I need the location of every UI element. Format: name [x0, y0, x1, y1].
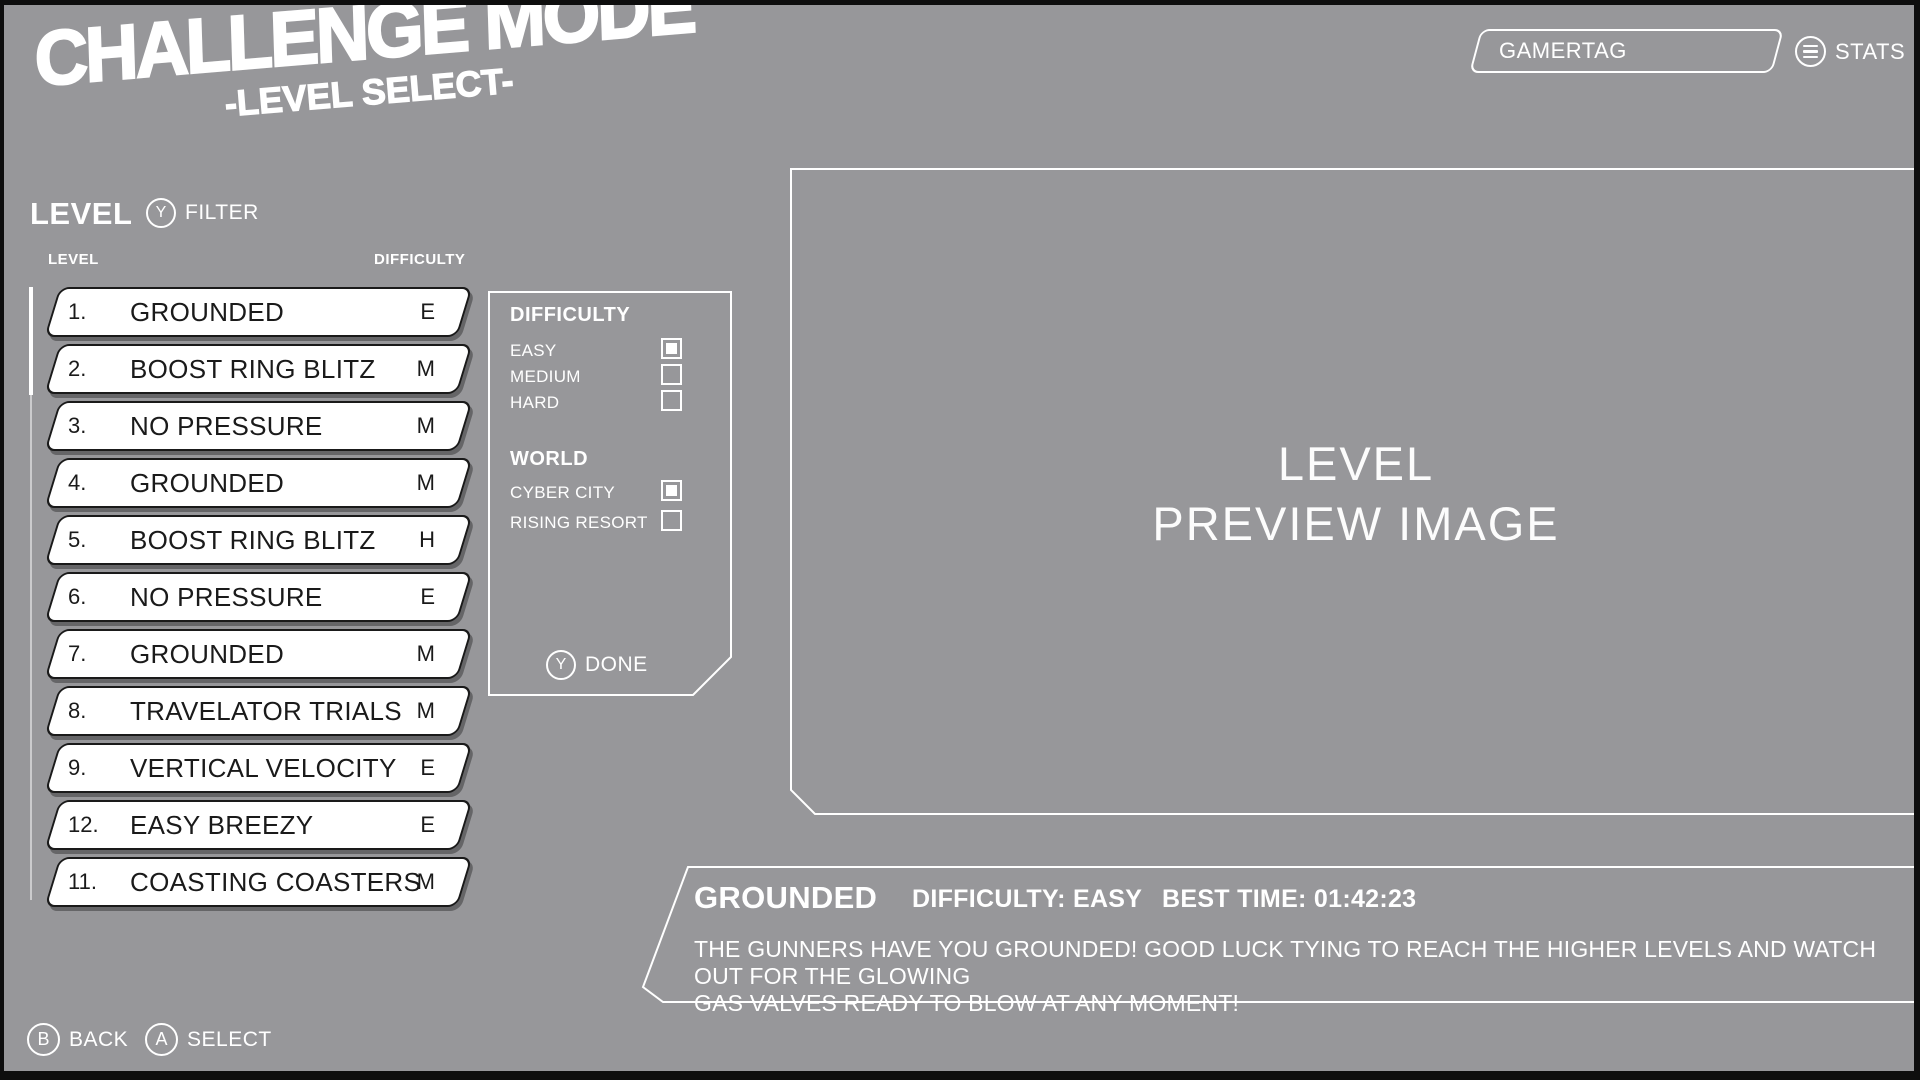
info-best-time: BEST TIME: 01:42:23	[1162, 885, 1416, 914]
level-difficulty: M	[417, 413, 435, 439]
level-list-scrollbar-track[interactable]	[30, 287, 32, 900]
level-difficulty: E	[420, 299, 435, 325]
filter-option-checkbox[interactable]	[661, 510, 682, 531]
page-border-top	[0, 0, 1920, 5]
level-row[interactable]: 3.NO PRESSUREM	[52, 401, 465, 451]
page-border-bottom	[0, 1071, 1920, 1080]
column-header-difficulty: DIFFICULTY	[374, 251, 465, 268]
filter-world-heading: WORLD	[510, 448, 588, 471]
info-description: THE GUNNERS HAVE YOU GROUNDED! GOOD LUCK…	[694, 936, 1920, 1017]
checkbox-check-mark	[666, 343, 677, 354]
info-level-name: GROUNDED	[694, 880, 877, 916]
level-number: 3.	[68, 413, 112, 439]
filter-button[interactable]: Y FILTER	[146, 198, 259, 228]
b-button-icon: B	[27, 1023, 60, 1056]
level-difficulty: E	[420, 812, 435, 838]
level-list: 1.GROUNDEDE2.BOOST RING BLITZM3.NO PRESS…	[52, 287, 465, 914]
y-button-icon: Y	[146, 198, 176, 228]
level-row[interactable]: 12.EASY BREEZYE	[52, 800, 465, 850]
level-section-heading: LEVEL	[30, 196, 132, 232]
level-row[interactable]: 2.BOOST RING BLITZM	[52, 344, 465, 394]
title-block: CHALLENGE MODE -LEVEL SELECT-	[22, 0, 709, 141]
level-name: BOOST RING BLITZ	[130, 525, 376, 556]
level-preview-placeholder: LEVEL PREVIEW IMAGE	[790, 434, 1920, 554]
filter-option-checkbox[interactable]	[661, 480, 682, 501]
a-button-icon: A	[145, 1023, 178, 1056]
level-name: NO PRESSURE	[130, 582, 323, 613]
level-difficulty: M	[417, 641, 435, 667]
hamburger-menu-icon	[1795, 36, 1826, 67]
stats-label: STATS	[1835, 39, 1905, 65]
back-label: BACK	[69, 1028, 128, 1052]
level-difficulty: E	[420, 755, 435, 781]
filter-option-label: RISING RESORT	[510, 513, 648, 533]
level-row[interactable]: 6.NO PRESSUREE	[52, 572, 465, 622]
level-difficulty: H	[419, 527, 435, 553]
level-difficulty: M	[417, 470, 435, 496]
level-name: TRAVELATOR TRIALS	[130, 696, 402, 727]
level-row[interactable]: 11.COASTING COASTERSM	[52, 857, 465, 907]
level-name: NO PRESSURE	[130, 411, 323, 442]
gamertag-value: GAMERTAG	[1499, 29, 1627, 73]
level-number: 6.	[68, 584, 112, 610]
level-name: GROUNDED	[130, 468, 284, 499]
level-row[interactable]: 7.GROUNDEDM	[52, 629, 465, 679]
level-number: 11.	[68, 869, 112, 895]
filter-option-checkbox[interactable]	[661, 364, 682, 385]
level-row[interactable]: 8.TRAVELATOR TRIALSM	[52, 686, 465, 736]
done-button[interactable]: Y DONE	[546, 650, 648, 680]
column-header-level: LEVEL	[48, 251, 99, 268]
page-border-left	[0, 0, 4, 1080]
preview-line2: PREVIEW IMAGE	[1152, 497, 1559, 550]
level-difficulty: M	[417, 869, 435, 895]
level-name: GROUNDED	[130, 297, 284, 328]
filter-option-label: CYBER CITY	[510, 483, 615, 503]
filter-option-checkbox[interactable]	[661, 338, 682, 359]
filter-label: FILTER	[185, 201, 259, 225]
level-name: BOOST RING BLITZ	[130, 354, 376, 385]
level-name: VERTICAL VELOCITY	[130, 753, 397, 784]
filter-difficulty-heading: DIFFICULTY	[510, 304, 630, 327]
info-description-line2: GAS VALVES READY TO BLOW AT ANY MOMENT!	[694, 990, 1920, 1017]
back-button[interactable]: B BACK	[27, 1023, 128, 1056]
level-number: 9.	[68, 755, 112, 781]
filter-option-label: MEDIUM	[510, 367, 581, 387]
gamertag-field[interactable]: GAMERTAG	[1475, 29, 1778, 73]
level-name: EASY BREEZY	[130, 810, 313, 841]
level-row[interactable]: 5.BOOST RING BLITZH	[52, 515, 465, 565]
stats-button[interactable]: STATS	[1795, 36, 1905, 67]
challenge-mode-screen: CHALLENGE MODE -LEVEL SELECT- GAMERTAG S…	[0, 0, 1920, 1080]
level-name: GROUNDED	[130, 639, 284, 670]
level-number: 2.	[68, 356, 112, 382]
preview-line1: LEVEL	[1278, 437, 1434, 490]
filter-option-checkbox[interactable]	[661, 390, 682, 411]
info-difficulty: DIFFICULTY: EASY	[912, 885, 1142, 914]
info-description-line1: THE GUNNERS HAVE YOU GROUNDED! GOOD LUCK…	[694, 936, 1920, 990]
level-row[interactable]: 1.GROUNDEDE	[52, 287, 465, 337]
level-number: 5.	[68, 527, 112, 553]
level-number: 1.	[68, 299, 112, 325]
page-border-right	[1914, 0, 1920, 1080]
y-button-icon: Y	[546, 650, 576, 680]
select-label: SELECT	[187, 1028, 272, 1052]
checkbox-check-mark	[666, 485, 677, 496]
done-label: DONE	[585, 653, 648, 677]
level-number: 4.	[68, 470, 112, 496]
level-number: 12.	[68, 812, 112, 838]
level-number: 8.	[68, 698, 112, 724]
select-button[interactable]: A SELECT	[145, 1023, 272, 1056]
level-row[interactable]: 9.VERTICAL VELOCITYE	[52, 743, 465, 793]
filter-option-label: EASY	[510, 341, 557, 361]
level-name: COASTING COASTERS	[130, 867, 421, 898]
level-number: 7.	[68, 641, 112, 667]
level-difficulty: M	[417, 698, 435, 724]
level-difficulty: M	[417, 356, 435, 382]
filter-option-label: HARD	[510, 393, 559, 413]
level-row[interactable]: 4.GROUNDEDM	[52, 458, 465, 508]
level-list-scrollbar-thumb[interactable]	[29, 287, 33, 395]
level-difficulty: E	[420, 584, 435, 610]
